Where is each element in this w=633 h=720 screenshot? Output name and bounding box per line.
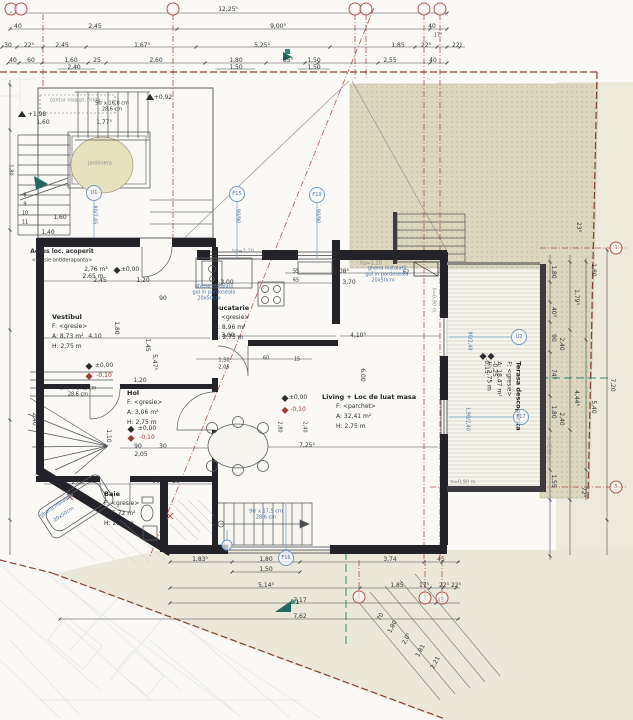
terrace-deck [447, 268, 540, 490]
floor-plan-drawing [0, 0, 633, 720]
jardiniera-planter [71, 137, 133, 193]
floor-plan-canvas: 12,25⁵402,459,00⁵4017⁵3022⁵2,451,67⁵5,25… [0, 0, 633, 720]
background-zones [0, 0, 633, 720]
